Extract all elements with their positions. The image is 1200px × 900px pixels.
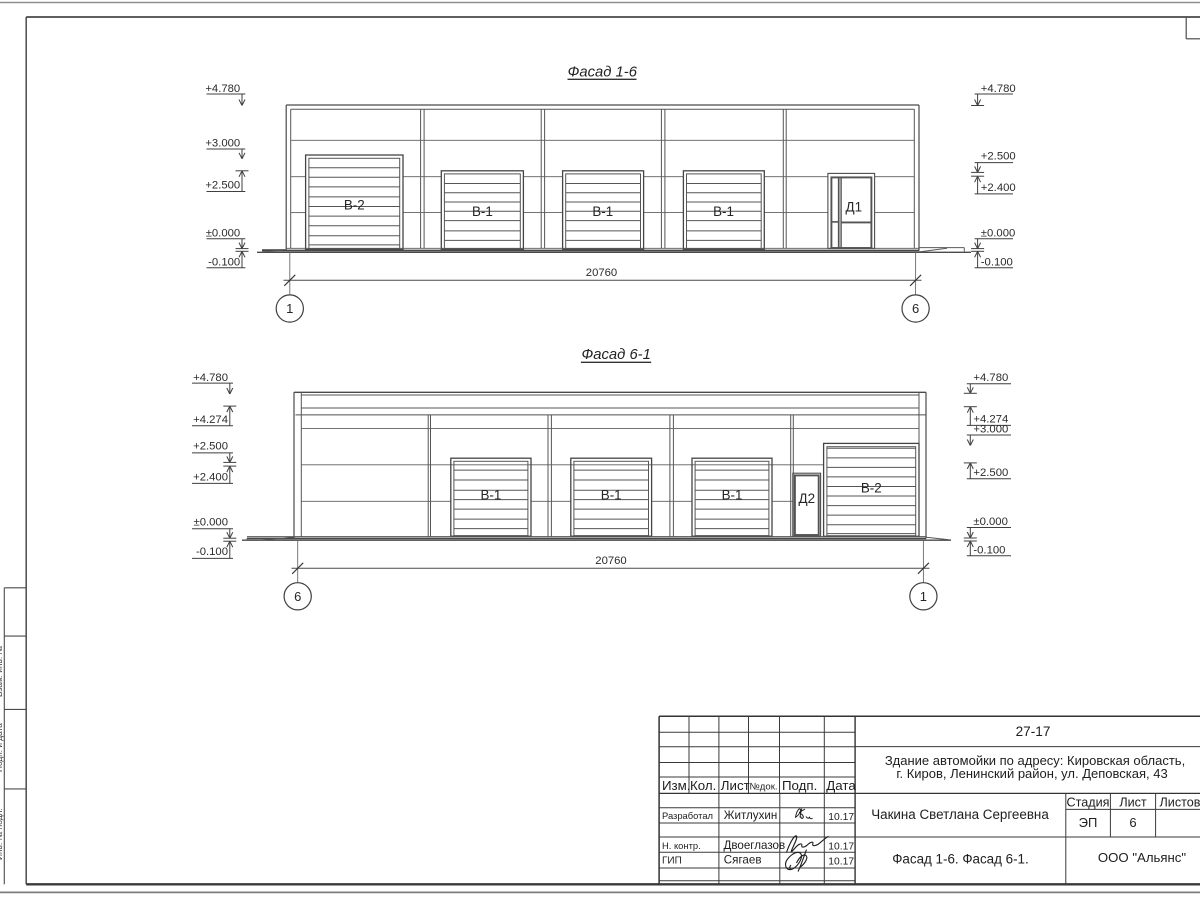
svg-text:Фасад 1-6: Фасад 1-6 — [568, 65, 638, 81]
svg-text:Инв. № подл.: Инв. № подл. — [0, 808, 4, 860]
svg-text:20760: 20760 — [586, 267, 617, 279]
svg-text:+3.000: +3.000 — [973, 424, 1008, 436]
svg-text:Д2: Д2 — [799, 491, 816, 506]
svg-text:Житлухин: Житлухин — [724, 809, 777, 822]
svg-text:№док.: №док. — [750, 782, 778, 793]
svg-text:10.17: 10.17 — [828, 857, 854, 868]
svg-text:-0.100: -0.100 — [973, 544, 1005, 556]
svg-text:10.17: 10.17 — [828, 812, 854, 823]
svg-text:+4.780: +4.780 — [205, 83, 240, 95]
svg-text:6: 6 — [1129, 815, 1136, 830]
svg-text:Кол.: Кол. — [690, 778, 716, 793]
svg-text:±0.000: ±0.000 — [194, 516, 228, 528]
svg-text:+2.500: +2.500 — [981, 150, 1016, 162]
svg-text:±0.000: ±0.000 — [981, 227, 1015, 239]
svg-text:Чакина Светлана Сергеевна: Чакина Светлана Сергеевна — [871, 807, 1049, 822]
svg-text:Подп. и дата: Подп. и дата — [0, 723, 4, 772]
svg-text:Стадия: Стадия — [1067, 796, 1110, 810]
svg-text:+2.400: +2.400 — [193, 471, 228, 483]
svg-text:В-2: В-2 — [344, 198, 365, 213]
svg-text:+4.780: +4.780 — [981, 83, 1016, 95]
svg-text:ЭП: ЭП — [1079, 815, 1098, 830]
svg-text:6: 6 — [294, 589, 301, 604]
svg-text:В-1: В-1 — [592, 204, 613, 219]
svg-text:г. Киров, Ленинский район, ул.: г. Киров, Ленинский район, ул. Деповская… — [896, 766, 1167, 781]
svg-text:Лист: Лист — [1119, 796, 1147, 810]
svg-text:6: 6 — [912, 301, 919, 316]
svg-text:-0.100: -0.100 — [196, 546, 228, 558]
svg-text:27-17: 27-17 — [1016, 724, 1051, 739]
svg-text:Взам. инв. №: Взам. инв. № — [0, 645, 4, 697]
svg-text:ГИП: ГИП — [662, 856, 682, 867]
svg-text:+2.500: +2.500 — [973, 467, 1008, 479]
svg-text:Фасад 1-6. Фасад 6-1.: Фасад 1-6. Фасад 6-1. — [892, 852, 1028, 867]
svg-text:Сягаев: Сягаев — [724, 854, 762, 867]
svg-text:-0.100: -0.100 — [981, 256, 1013, 268]
svg-text:В-2: В-2 — [861, 481, 882, 496]
svg-text:ООО "Альянс": ООО "Альянс" — [1098, 850, 1186, 865]
svg-text:1: 1 — [286, 301, 293, 316]
svg-text:-0.100: -0.100 — [208, 257, 240, 269]
svg-text:+3.000: +3.000 — [205, 137, 240, 149]
svg-text:+2.500: +2.500 — [205, 180, 240, 192]
svg-text:Двоеглазов: Двоеглазов — [724, 839, 786, 852]
svg-text:Листов: Листов — [1160, 796, 1200, 810]
svg-text:В-1: В-1 — [480, 487, 501, 502]
svg-text:+4.274: +4.274 — [193, 414, 228, 426]
svg-text:+4.780: +4.780 — [193, 372, 228, 384]
svg-text:Изм.: Изм. — [662, 778, 691, 793]
svg-text:В-1: В-1 — [722, 487, 743, 502]
svg-text:Дата: Дата — [826, 778, 856, 793]
svg-text:+4.780: +4.780 — [973, 372, 1008, 384]
svg-text:Д1: Д1 — [846, 200, 863, 215]
svg-text:В-1: В-1 — [601, 487, 622, 502]
svg-text:±0.000: ±0.000 — [973, 516, 1007, 528]
svg-text:Разработал: Разработал — [662, 810, 713, 821]
svg-text:Лист: Лист — [721, 778, 750, 793]
svg-text:20760: 20760 — [595, 555, 626, 567]
svg-text:10.17: 10.17 — [828, 842, 854, 853]
svg-text:Фасад 6-1: Фасад 6-1 — [582, 347, 651, 363]
svg-text:+2.400: +2.400 — [981, 182, 1016, 194]
svg-text:Подп.: Подп. — [782, 778, 817, 793]
svg-text:Н. контр.: Н. контр. — [662, 840, 701, 851]
svg-text:1: 1 — [920, 589, 927, 604]
svg-text:В-1: В-1 — [713, 204, 734, 219]
svg-text:+2.500: +2.500 — [193, 440, 228, 452]
svg-text:В-1: В-1 — [472, 204, 493, 219]
svg-text:±0.000: ±0.000 — [206, 227, 240, 239]
